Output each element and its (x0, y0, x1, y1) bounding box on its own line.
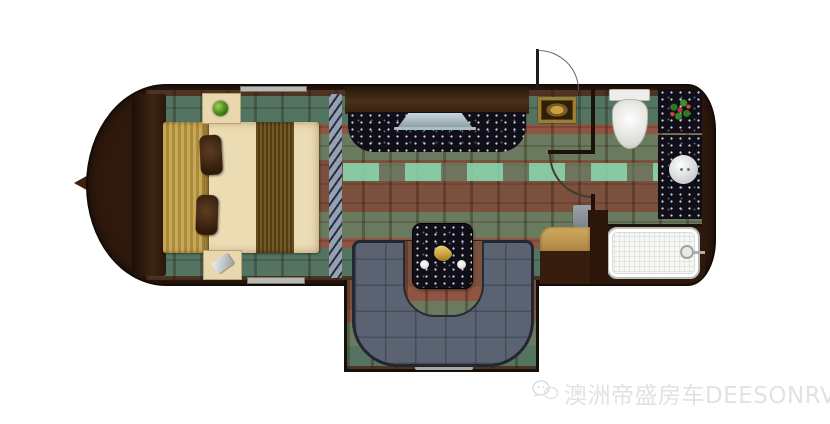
master-bed (163, 122, 319, 253)
vanity-counter-top (658, 89, 702, 133)
flower-arrangement-icon (665, 96, 695, 124)
wechat-style-logo-icon (530, 378, 560, 408)
vanity-counter-sink (658, 135, 702, 219)
entertainment-cabinet (345, 86, 529, 114)
plate-icon (420, 260, 429, 269)
rug-mint-band (343, 163, 701, 181)
dinette-table (413, 224, 472, 288)
plate-icon (457, 260, 466, 269)
side-cabinet (540, 251, 590, 284)
window-bottom (247, 277, 305, 284)
window-top (240, 86, 307, 92)
nightstand-bottom (203, 250, 242, 280)
bed-runner (256, 122, 294, 253)
sink-faucet-dot (680, 168, 683, 171)
wood-cabinet-column (588, 210, 608, 284)
bed-headboard (132, 94, 166, 276)
watermark-text: 澳洲帝盛房车DEESONRV (564, 376, 830, 410)
side-counter-top (540, 227, 590, 253)
round-sink-icon (669, 155, 698, 184)
gold-centerpiece-icon (431, 242, 454, 264)
tv-base (394, 127, 476, 130)
watermark: 澳洲帝盛房车DEESONRV (530, 376, 830, 410)
entry-door-mat (538, 97, 576, 123)
nightstand-top (202, 93, 241, 124)
pillow (199, 134, 223, 175)
shower-drain-icon (680, 245, 694, 259)
plant-icon (213, 101, 228, 116)
pillow (195, 195, 218, 236)
floorplan-canvas: 澳洲帝盛房车DEESONRV (0, 0, 830, 424)
sink-faucet-dot (687, 168, 690, 171)
bathroom-wall (591, 86, 595, 152)
bedroom-privacy-divider (329, 94, 342, 278)
book-icon (211, 253, 234, 275)
entry-door-swing-arc (538, 50, 579, 90)
tv-icon (398, 113, 472, 127)
